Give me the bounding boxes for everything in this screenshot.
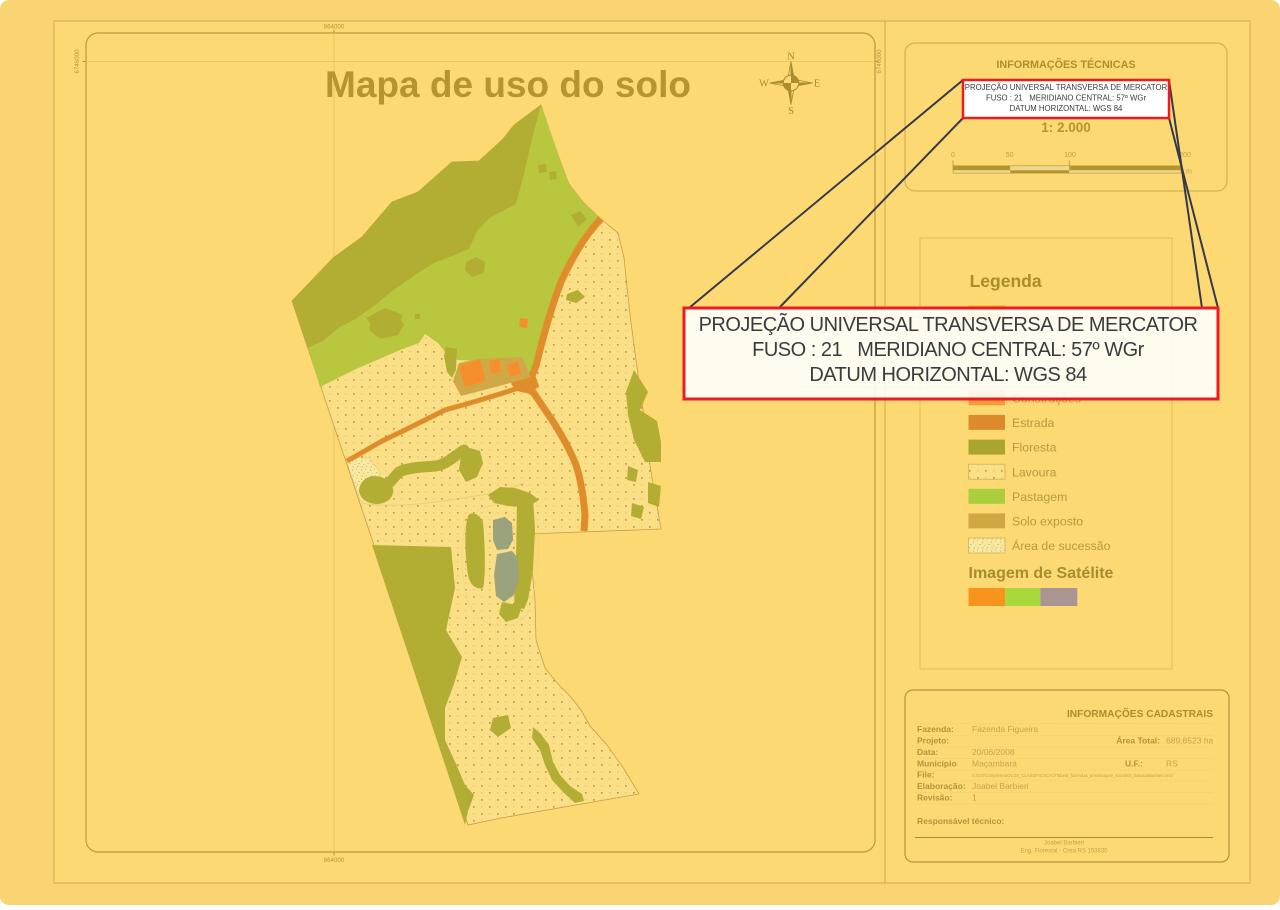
svg-text:Lavoura: Lavoura: [1012, 465, 1057, 479]
svg-text:Joabel Barbieri: Joabel Barbieri: [1044, 841, 1084, 847]
svg-text:1: 2.000: 1: 2.000: [1041, 120, 1091, 135]
svg-text:Floresta: Floresta: [1012, 441, 1057, 455]
svg-text:100: 100: [1064, 152, 1076, 159]
svg-text:Joabel Barbieri: Joabel Barbieri: [972, 781, 1029, 791]
svg-text:Pastagem: Pastagem: [1012, 490, 1067, 504]
svg-text:864000: 864000: [324, 23, 345, 30]
svg-text:S: S: [788, 106, 794, 117]
svg-text:50: 50: [1006, 152, 1014, 159]
svg-text:DATUM HORIZONTAL: WGS 84: DATUM HORIZONTAL: WGS 84: [1010, 104, 1123, 113]
svg-text:Eng. Florestal - Crea RS 15383: Eng. Florestal - Crea RS 153830: [1020, 849, 1108, 855]
svg-text:Imagem de Satélite: Imagem de Satélite: [969, 565, 1114, 582]
svg-text:1: 1: [972, 793, 977, 803]
svg-text:0: 0: [951, 152, 955, 159]
svg-text:m: m: [1186, 169, 1192, 176]
svg-text:INFORMAÇÕES CADASTRAIS: INFORMAÇÕES CADASTRAIS: [1067, 707, 1213, 720]
svg-text:FUSO : 21 MERIDIANO CENTRAL:: FUSO : 21 MERIDIANO CENTRAL: 57º WGr: [986, 94, 1147, 103]
svg-text:File:: File:: [917, 770, 935, 780]
svg-text:Mapa de uso do solo: Mapa de uso do solo: [325, 64, 691, 105]
svg-text:Área de sucessão: Área de sucessão: [1012, 538, 1111, 553]
svg-text:U.F.:: U.F.:: [1125, 759, 1143, 769]
svg-text:Área Total:: Área Total:: [1116, 736, 1160, 746]
svg-text:Data:: Data:: [917, 747, 938, 757]
svg-text:DATUM HORIZONTAL: WGS 84: DATUM HORIZONTAL: WGS 84: [809, 364, 1087, 386]
svg-text:W: W: [759, 79, 769, 90]
svg-text:Município: Município: [917, 759, 957, 769]
svg-text:6746000: 6746000: [74, 49, 81, 74]
svg-text:Elaboração:: Elaboração:: [917, 781, 966, 791]
svg-text:Revisão:: Revisão:: [917, 793, 953, 803]
svg-text:Legenda: Legenda: [970, 271, 1042, 291]
svg-text:689,6523 ha: 689,6523 ha: [1166, 736, 1214, 746]
svg-text:Fazenda:: Fazenda:: [917, 724, 954, 734]
svg-text:Projeto:: Projeto:: [917, 736, 949, 746]
svg-text:FUSO : 21 MERIDIANO CENTRAL:: FUSO : 21 MERIDIANO CENTRAL: 57º WGr: [752, 339, 1145, 361]
svg-text:RS: RS: [1166, 759, 1178, 769]
svg-text:Maçambará: Maçambará: [972, 759, 1017, 769]
svg-text:20/06/2008: 20/06/2008: [972, 747, 1015, 757]
svg-text:PROJEÇÃO UNIVERSAL TRANSVERSA: PROJEÇÃO UNIVERSAL TRANSVERSA DE MERCATO…: [965, 83, 1168, 92]
svg-text:N: N: [787, 52, 795, 63]
svg-text:Estrada: Estrada: [1012, 416, 1055, 430]
svg-text:E: E: [814, 79, 820, 90]
svg-text:INFORMAÇÕES TÉCNICAS: INFORMAÇÕES TÉCNICAS: [996, 58, 1135, 71]
svg-text:S:\GIS\Completo\SOLOS_CLASSIFI: S:\GIS\Completo\SOLOS_CLASSIFICACAO\Tabe…: [972, 773, 1173, 778]
svg-text:Solo exposto: Solo exposto: [1012, 515, 1083, 529]
svg-text:Responsável técnico:: Responsável técnico:: [917, 816, 1005, 826]
svg-text:864000: 864000: [324, 857, 345, 864]
svg-text:Fazenda Figueira: Fazenda Figueira: [972, 724, 1038, 734]
svg-text:PROJEÇÃO UNIVERSAL TRANSVERSA: PROJEÇÃO UNIVERSAL TRANSVERSA DE MERCATO…: [699, 312, 1198, 336]
svg-text:6746000: 6746000: [876, 49, 883, 74]
